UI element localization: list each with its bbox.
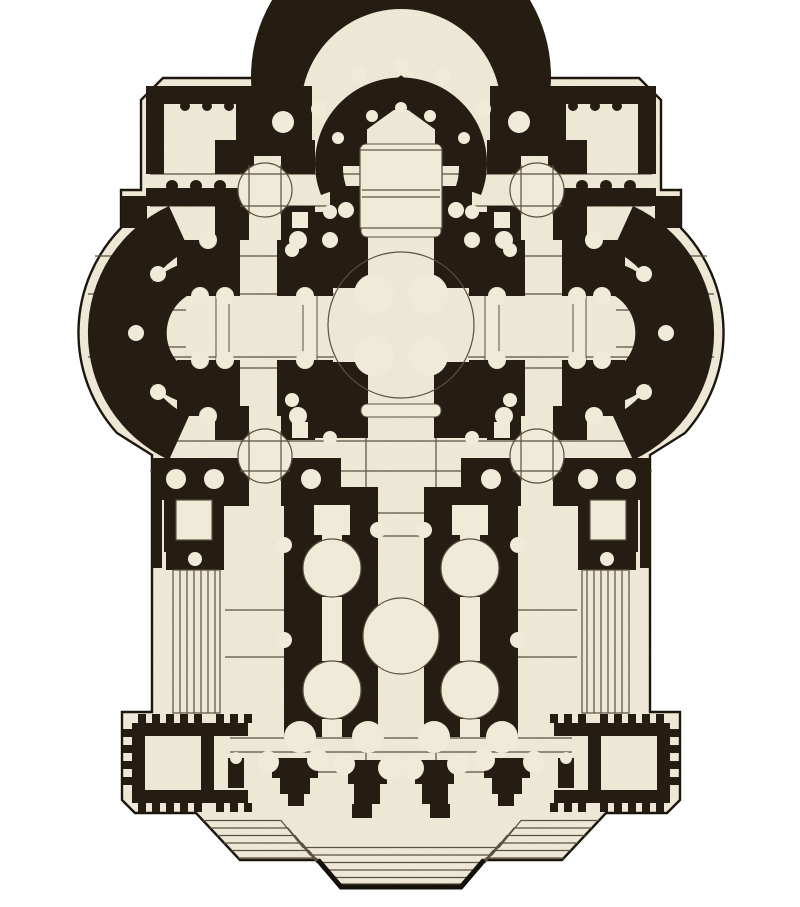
floor-plan-svg — [0, 0, 800, 907]
floor-plan-figure — [0, 0, 800, 907]
high-altar — [360, 150, 442, 228]
nave-rotunda-circle — [363, 598, 439, 674]
